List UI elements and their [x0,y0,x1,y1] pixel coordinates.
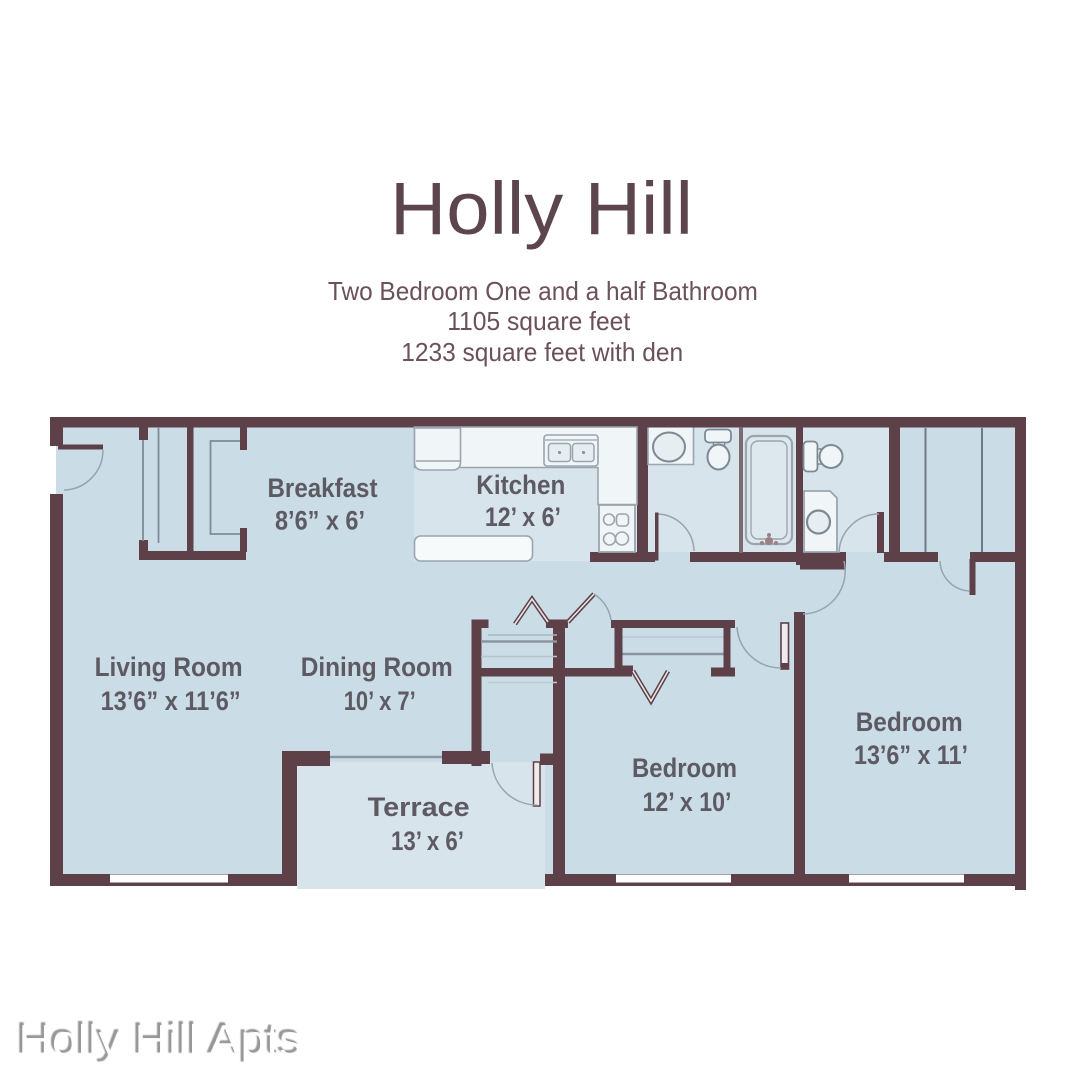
svg-text:Dining Room: Dining Room [301,652,453,682]
svg-text:8’6” x 6’: 8’6” x 6’ [275,506,365,536]
svg-text:Terrace: Terrace [368,792,470,822]
svg-text:Holly Hill: Holly Hill [390,167,693,250]
svg-text:10’ x 7’: 10’ x 7’ [344,686,416,716]
svg-text:Kitchen: Kitchen [476,470,565,500]
svg-text:1105 square feet: 1105 square feet [447,306,631,336]
svg-text:Holly Hill Apts: Holly Hill Apts [19,1018,303,1066]
svg-text:12’ x 6’: 12’ x 6’ [485,502,561,532]
svg-text:Bedroom: Bedroom [856,707,963,737]
svg-text:13’ x 6’: 13’ x 6’ [391,826,464,856]
svg-text:Living Room: Living Room [95,652,243,682]
svg-text:Bedroom: Bedroom [632,753,737,783]
svg-text:12’ x 10’: 12’ x 10’ [643,787,732,817]
svg-text:1233 square feet with den: 1233 square feet with den [401,337,683,367]
svg-text:13’6” x 11’6”: 13’6” x 11’6” [101,686,241,716]
svg-text:Two Bedroom One and a half Bat: Two Bedroom One and a half Bathroom [328,276,758,306]
svg-text:Breakfast: Breakfast [268,473,378,503]
svg-text:13’6” x 11’: 13’6” x 11’ [854,740,968,770]
